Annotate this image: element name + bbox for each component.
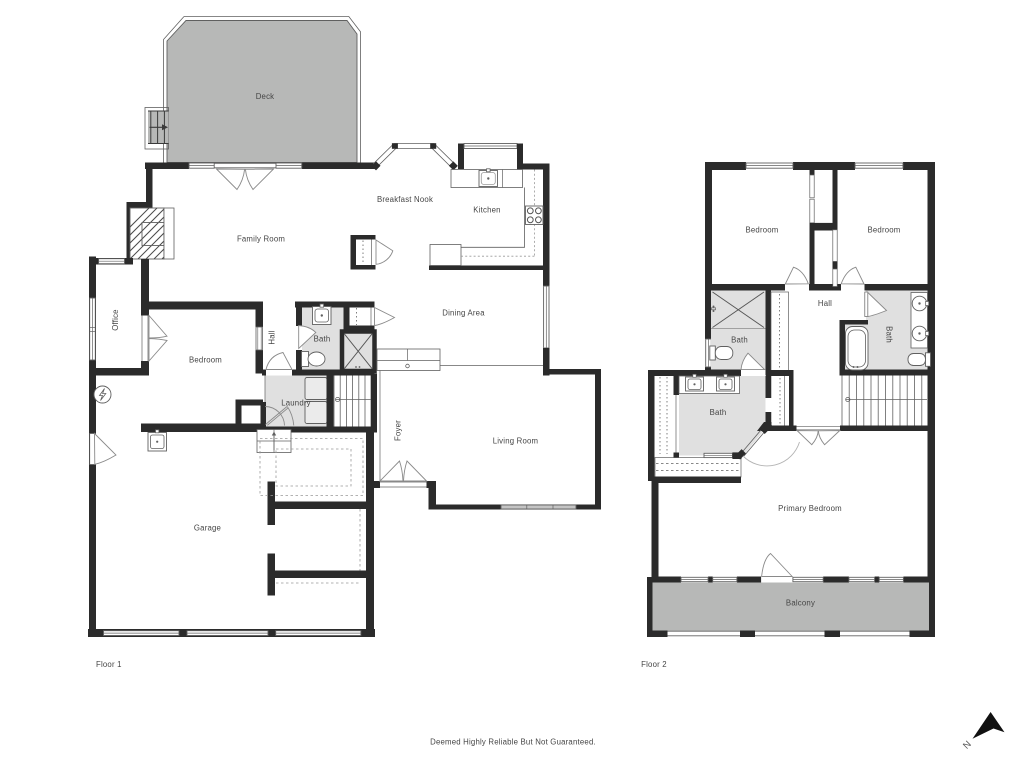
svg-text:Hall: Hall bbox=[818, 299, 832, 308]
svg-text:Kitchen: Kitchen bbox=[473, 206, 500, 215]
svg-text:Office: Office bbox=[111, 309, 120, 330]
svg-text:Primary Bedroom: Primary Bedroom bbox=[778, 504, 842, 513]
svg-text:Foyer: Foyer bbox=[394, 420, 403, 441]
svg-text:Bath: Bath bbox=[314, 335, 331, 344]
svg-text:Dining Area: Dining Area bbox=[442, 309, 485, 318]
svg-text:Deck: Deck bbox=[256, 92, 275, 101]
svg-text:Bedroom: Bedroom bbox=[745, 226, 778, 235]
svg-text:Hall: Hall bbox=[268, 330, 277, 344]
svg-text:Garage: Garage bbox=[194, 524, 221, 533]
svg-text:Bath: Bath bbox=[731, 336, 748, 345]
svg-text:Bath: Bath bbox=[885, 326, 894, 343]
svg-text:Living Room: Living Room bbox=[493, 437, 539, 446]
svg-text:Bedroom: Bedroom bbox=[867, 226, 900, 235]
svg-text:Bath: Bath bbox=[710, 408, 727, 417]
svg-text:Breakfast Nook: Breakfast Nook bbox=[377, 195, 433, 204]
svg-text:Laundry: Laundry bbox=[281, 399, 311, 408]
svg-text:Deemed Highly Reliable But Not: Deemed Highly Reliable But Not Guarantee… bbox=[430, 738, 596, 747]
svg-text:Balcony: Balcony bbox=[786, 599, 815, 608]
svg-text:Bedroom: Bedroom bbox=[189, 356, 222, 365]
svg-text:Floor 1: Floor 1 bbox=[96, 660, 122, 669]
svg-text:Floor 2: Floor 2 bbox=[641, 660, 667, 669]
svg-text:Family Room: Family Room bbox=[237, 235, 285, 244]
